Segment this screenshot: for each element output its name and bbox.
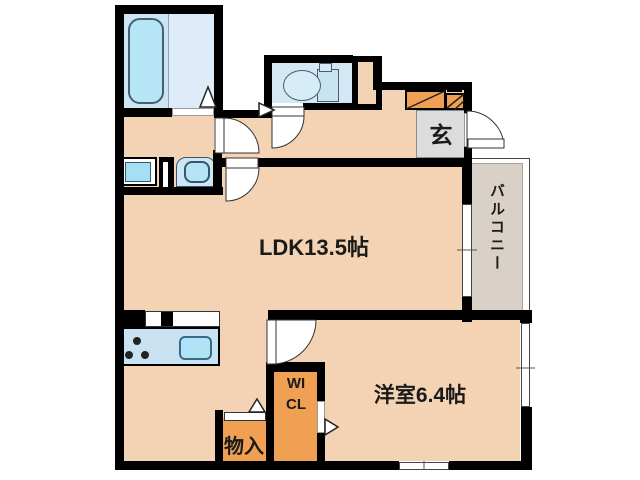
storage-door-marker [249, 399, 265, 412]
entrance-label: 玄 [417, 116, 465, 150]
wicl-door-arrow [325, 419, 338, 435]
wicl-label: WICL [284, 373, 308, 415]
toilet-door-arc [272, 116, 304, 148]
toilet-door-leaf [272, 107, 304, 116]
entrance-door-leaf [468, 139, 504, 148]
shoe-cabinet-diagonal [454, 101, 464, 110]
washroom-door-arc [224, 118, 259, 153]
floor-plan: LDK13.5帖 洋室6.4帖 玄 物入 WICL バルコニー [0, 0, 640, 480]
bedroom-door-leaf [267, 320, 276, 364]
shoe-cabinet-diagonal [447, 94, 464, 108]
balcony-label: バルコニー [486, 183, 507, 313]
bedroom-door-arc [272, 320, 316, 364]
shoe-cabinet-diagonal [406, 91, 445, 109]
ldk-label: LDK13.5帖 [236, 230, 392, 262]
storage-label: 物入 [221, 430, 267, 459]
bathroom-door-marker [200, 87, 216, 107]
washroom-door-leaf [215, 118, 224, 153]
ldk-door-arc [226, 168, 259, 201]
ldk-door-leaf [226, 158, 258, 168]
bedroom-label: 洋室6.4帖 [364, 379, 476, 409]
